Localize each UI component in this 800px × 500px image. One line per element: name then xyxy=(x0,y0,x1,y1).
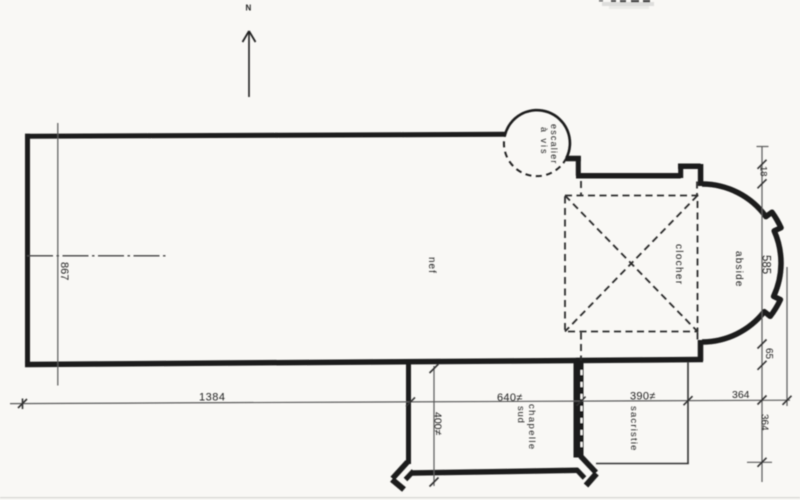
svg-text:N: N xyxy=(246,4,252,13)
svg-text:400≠: 400≠ xyxy=(432,412,444,436)
svg-text:1384: 1384 xyxy=(199,392,225,404)
svg-text:640≠: 640≠ xyxy=(497,392,523,404)
svg-text:18: 18 xyxy=(758,166,769,177)
svg-text:585: 585 xyxy=(760,255,772,274)
svg-text:sacristie: sacristie xyxy=(628,406,639,452)
svg-text:escalier: escalier xyxy=(549,124,559,165)
svg-text:65: 65 xyxy=(763,348,774,360)
svg-text:nef: nef xyxy=(426,257,437,274)
svg-text:chapelle: chapelle xyxy=(526,404,537,451)
svg-text:clocher: clocher xyxy=(673,244,684,285)
svg-text:867: 867 xyxy=(58,262,70,280)
svg-text:390≠: 390≠ xyxy=(630,391,656,403)
svg-text:sud: sud xyxy=(515,406,526,424)
svg-text:364: 364 xyxy=(732,389,750,401)
svg-text:à vis: à vis xyxy=(539,127,549,156)
svg-text:364: 364 xyxy=(759,414,770,431)
svg-text:abside: abside xyxy=(733,251,744,288)
